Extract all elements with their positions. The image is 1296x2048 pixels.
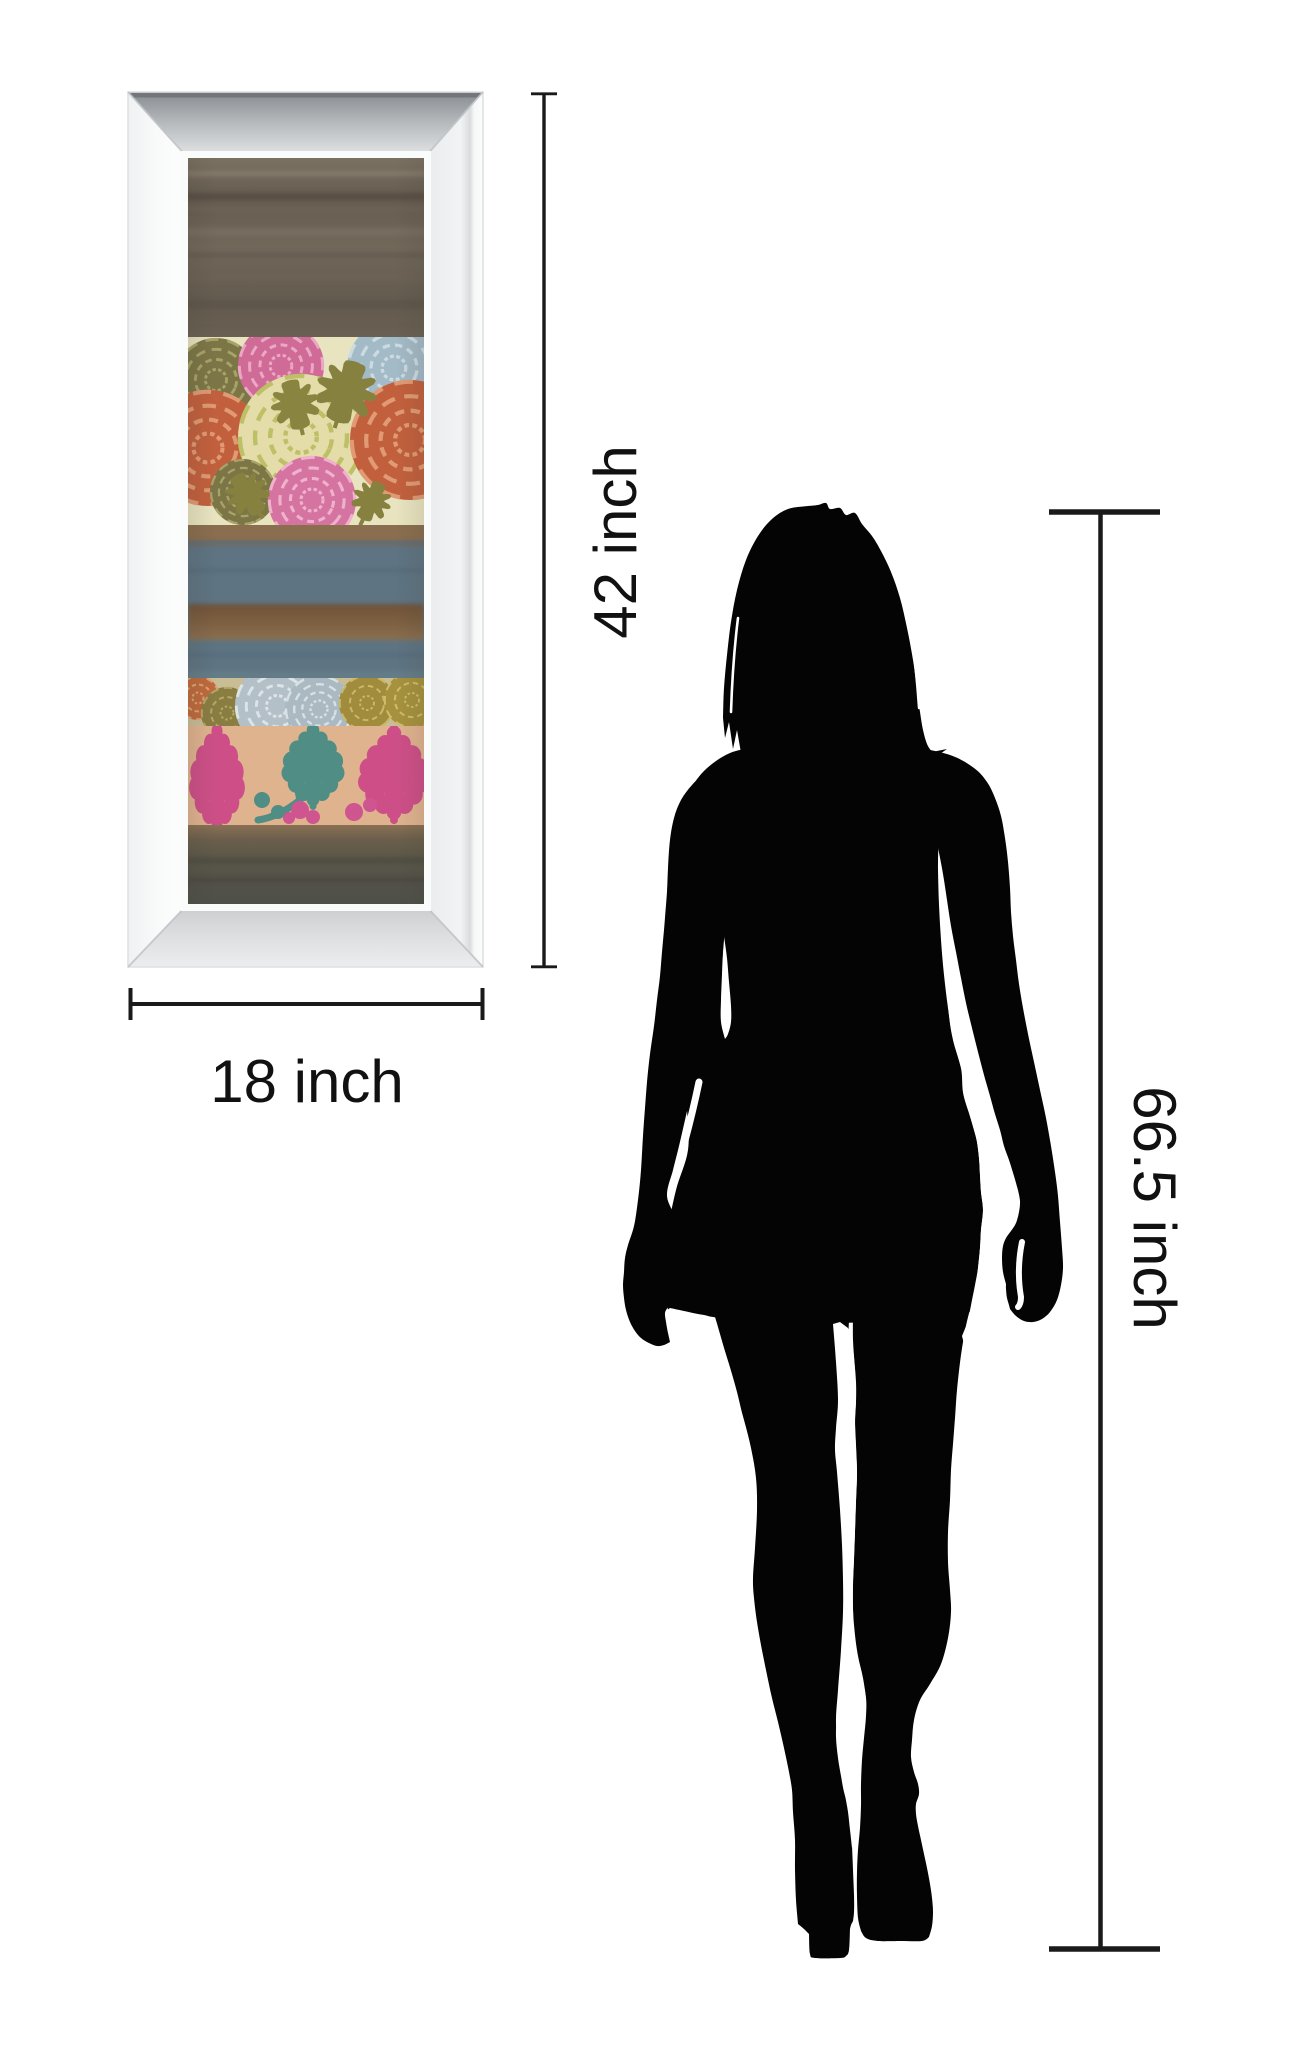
svg-text:18 inch: 18 inch xyxy=(210,1048,403,1115)
svg-text:66.5 inch: 66.5 inch xyxy=(1121,1086,1188,1330)
svg-text:42 inch: 42 inch xyxy=(582,445,649,638)
